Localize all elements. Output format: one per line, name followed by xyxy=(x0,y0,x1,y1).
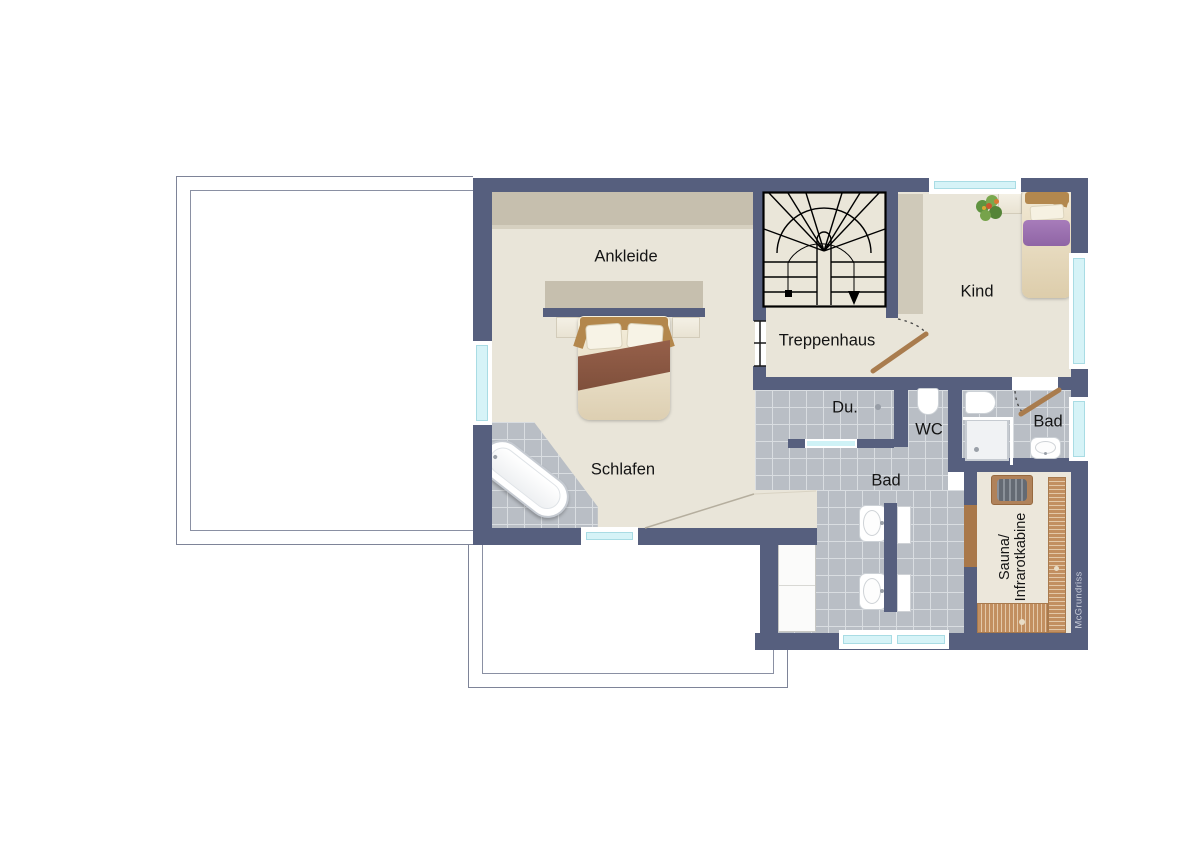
door-leaf-bad-small xyxy=(1021,390,1059,414)
label-sauna: Sauna/ Infrarotkabine xyxy=(997,513,1029,602)
label-treppenhaus: Treppenhaus xyxy=(779,332,876,351)
label-schlafen: Schlafen xyxy=(591,461,655,480)
label-kind: Kind xyxy=(960,283,993,302)
door-leaf-kind xyxy=(873,334,926,371)
label-bad-main: Bad xyxy=(871,472,900,491)
label-wc: WC xyxy=(915,421,943,440)
door-arc-bad-small xyxy=(1015,391,1023,413)
label-bad-small: Bad xyxy=(1033,413,1062,432)
floor-plan: Ankleide Treppenhaus Kind Schlafen Du. W… xyxy=(0,0,1200,848)
label-dusche: Du. xyxy=(832,399,858,418)
door-symbols-layer xyxy=(0,0,1200,848)
label-ankleide: Ankleide xyxy=(594,248,657,267)
floor-diagonal-line xyxy=(645,494,754,528)
passage-edge-line xyxy=(754,491,816,494)
pocket-door-ankleide xyxy=(754,321,766,366)
watermark: McGrundriss xyxy=(1074,571,1085,628)
